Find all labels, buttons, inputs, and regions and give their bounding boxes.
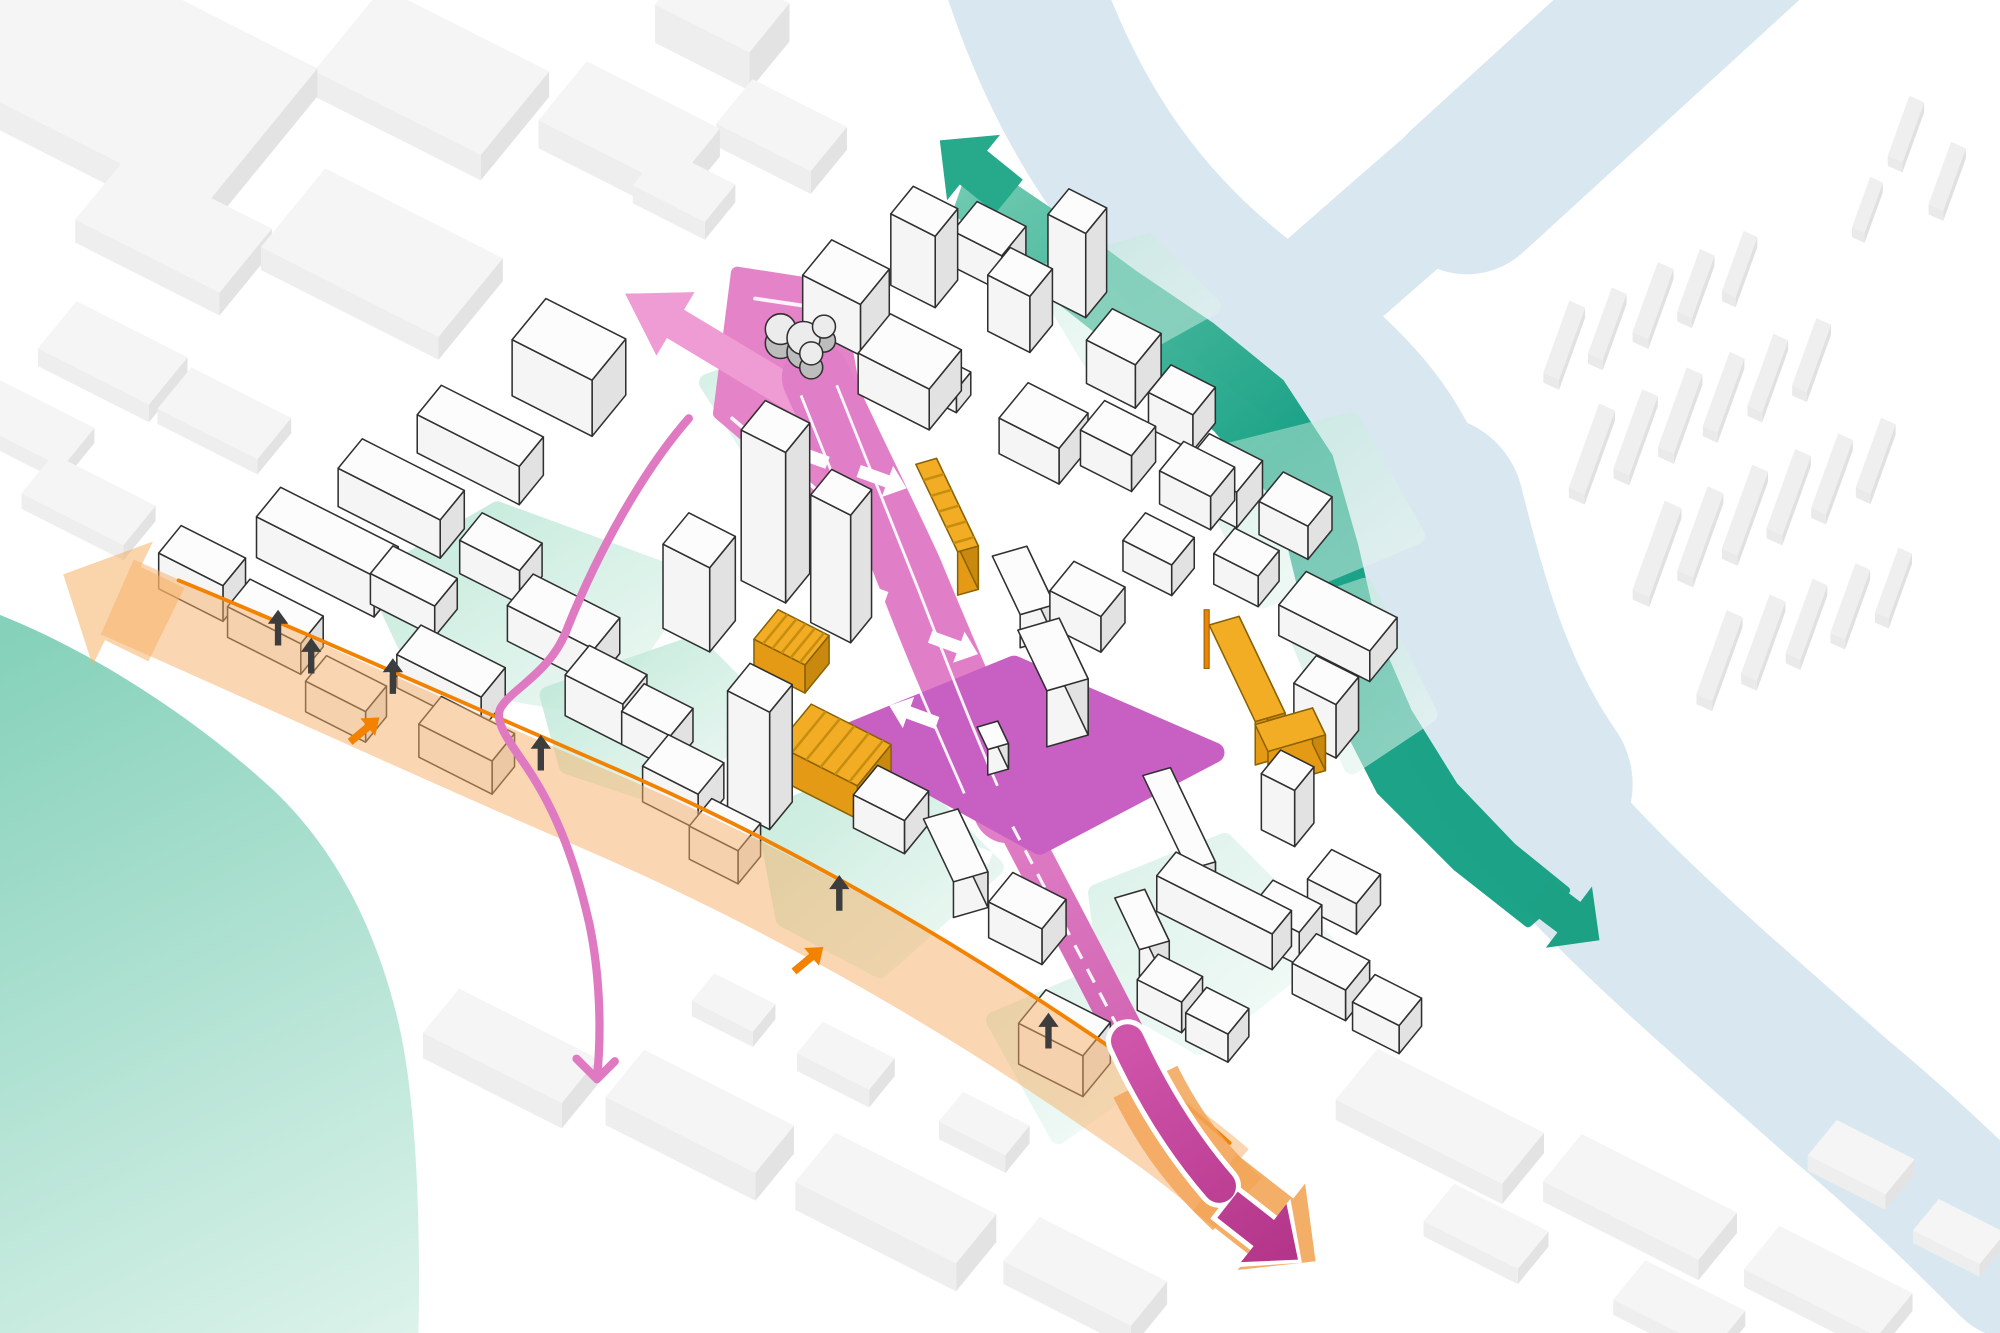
masterplan-diagram [0,0,2000,1333]
diagram-canvas [0,0,2000,1333]
